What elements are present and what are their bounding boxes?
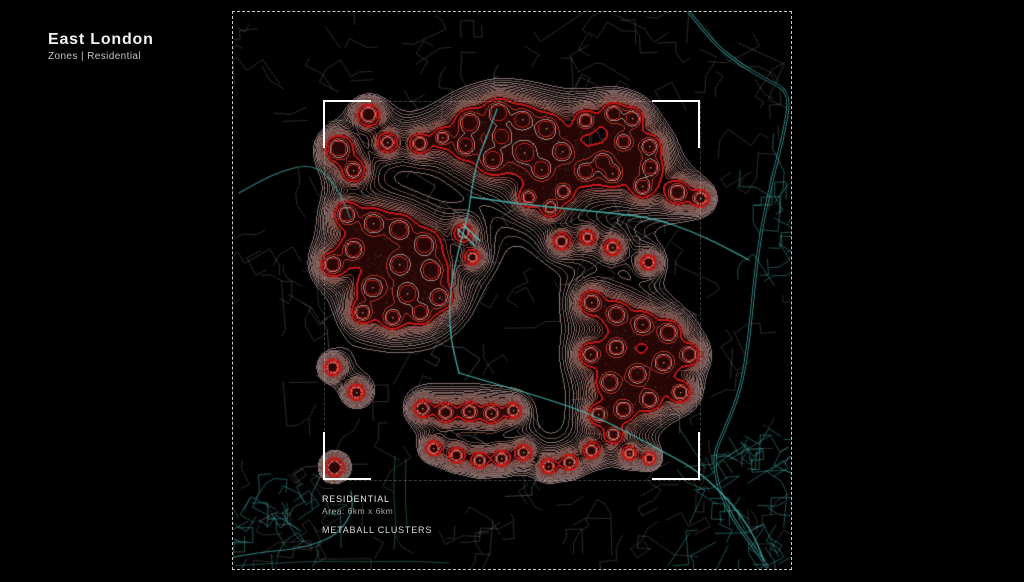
title-block: East London Zones | Residential — [48, 31, 154, 62]
metaball-map-canvas — [233, 12, 791, 569]
canvas-stage: East London Zones | Residential RESIDENT… — [0, 0, 1024, 582]
caption-label: METABALL CLUSTERS — [322, 525, 432, 535]
page-title: East London — [48, 31, 154, 49]
map-label-block: RESIDENTIAL Area: 6km x 6km METABALL CLU… — [322, 494, 432, 535]
page-subtitle: Zones | Residential — [48, 51, 154, 62]
zone-label: RESIDENTIAL — [322, 494, 432, 504]
map-frame: RESIDENTIAL Area: 6km x 6km METABALL CLU… — [232, 11, 792, 570]
area-label: Area: 6km x 6km — [322, 506, 432, 516]
